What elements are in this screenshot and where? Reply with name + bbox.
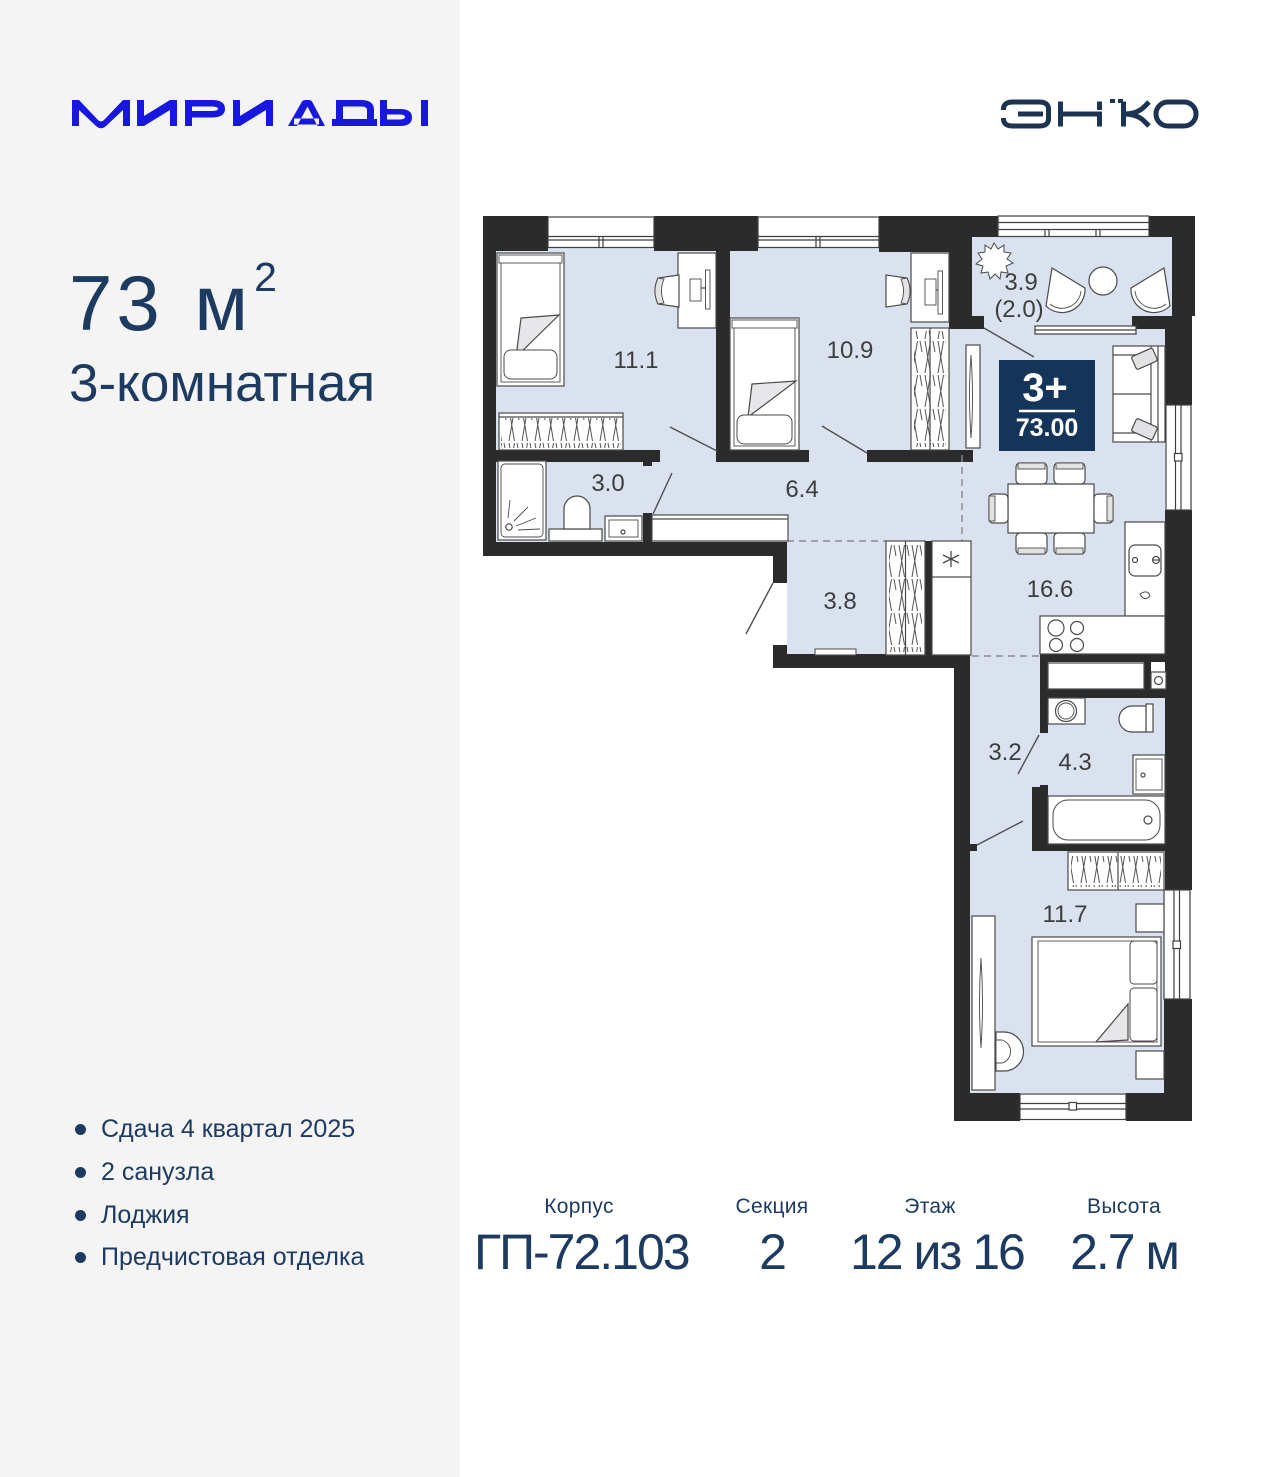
svg-text:3.2: 3.2: [988, 739, 1021, 766]
svg-text:16.6: 16.6: [1027, 576, 1074, 603]
svg-text:3+: 3+: [1022, 366, 1068, 410]
svg-text:3.9: 3.9: [1004, 269, 1037, 296]
svg-text:73.00: 73.00: [1016, 414, 1079, 442]
svg-text:3.0: 3.0: [591, 470, 624, 497]
svg-text:4.3: 4.3: [1058, 749, 1091, 776]
svg-text:3.8: 3.8: [823, 588, 856, 615]
svg-text:(2.0): (2.0): [994, 296, 1043, 323]
svg-text:10.9: 10.9: [827, 337, 874, 364]
svg-text:6.4: 6.4: [785, 476, 818, 503]
svg-text:11.7: 11.7: [1043, 901, 1088, 928]
svg-text:11.1: 11.1: [614, 347, 659, 374]
